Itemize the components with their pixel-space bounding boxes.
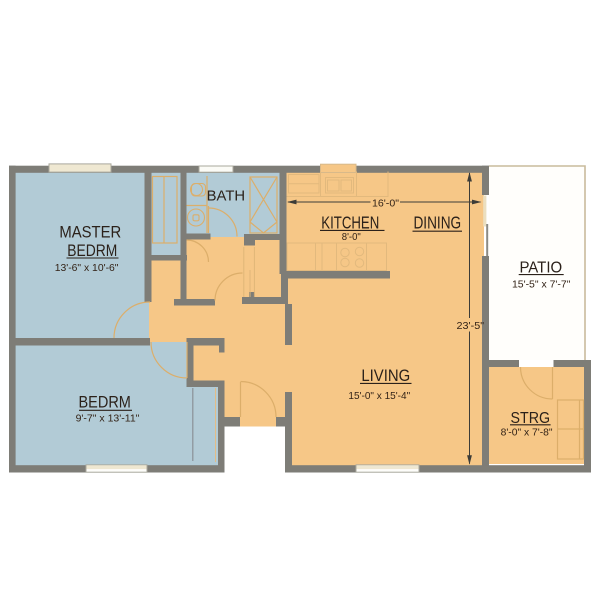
svg-text:LIVING: LIVING <box>361 366 410 385</box>
svg-text:MASTER: MASTER <box>59 223 121 242</box>
svg-text:13'-6" x 10'-6": 13'-6" x 10'-6" <box>55 262 119 274</box>
svg-text:8'-0" x 7'-8": 8'-0" x 7'-8" <box>501 426 553 438</box>
svg-text:9'-7" x 13'-11": 9'-7" x 13'-11" <box>76 413 140 425</box>
svg-text:DINING: DINING <box>413 213 461 233</box>
svg-text:8'-0": 8'-0" <box>342 231 361 243</box>
svg-text:BATH: BATH <box>207 188 246 204</box>
svg-text:KITCHEN: KITCHEN <box>321 213 379 233</box>
svg-text:BEDRM: BEDRM <box>79 392 131 411</box>
svg-text:PATIO: PATIO <box>519 260 562 277</box>
svg-text:BEDRM: BEDRM <box>67 241 117 260</box>
svg-text:16'-0": 16'-0" <box>372 198 399 210</box>
svg-text:15'-5" x 7'-7": 15'-5" x 7'-7" <box>512 278 571 290</box>
svg-text:23'-5": 23'-5" <box>457 320 485 332</box>
svg-text:15'-0" x 15'-4": 15'-0" x 15'-4" <box>348 390 410 402</box>
